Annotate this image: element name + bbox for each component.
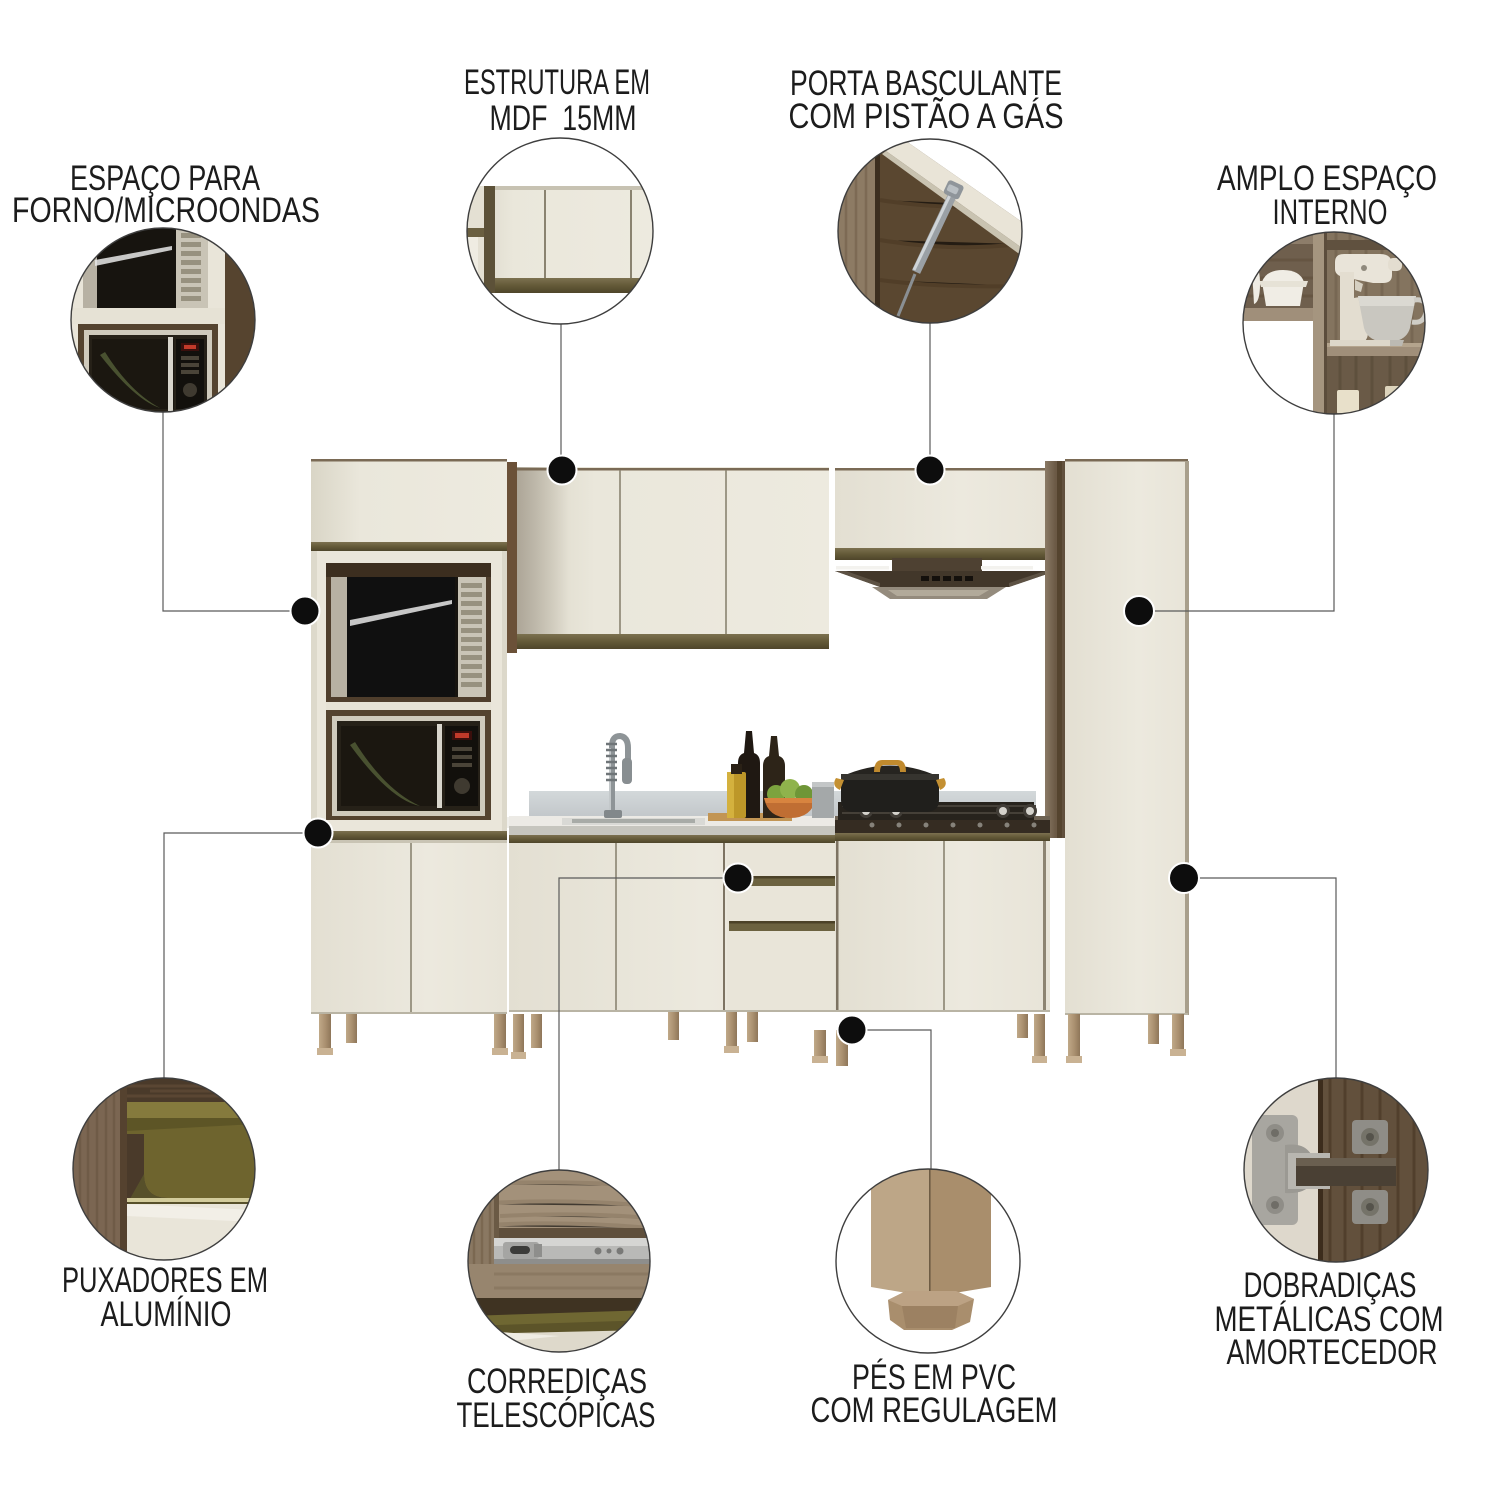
svg-text:TELESCÓPICAS: TELESCÓPICAS	[457, 1396, 656, 1435]
svg-text:MDF 15MM: MDF 15MM	[490, 99, 637, 138]
svg-text:FORNO/MICROONDAS: FORNO/MICROONDAS	[12, 191, 320, 230]
svg-text:AMORTECEDOR: AMORTECEDOR	[1227, 1333, 1438, 1372]
svg-text:COM PISTÃO A GÁS: COM PISTÃO A GÁS	[789, 97, 1064, 136]
svg-text:COM REGULAGEM: COM REGULAGEM	[811, 1391, 1058, 1430]
svg-text:ALUMÍNIO: ALUMÍNIO	[101, 1295, 232, 1334]
svg-text:INTERNO: INTERNO	[1273, 193, 1388, 232]
svg-text:ESTRUTURA EM: ESTRUTURA EM	[464, 63, 650, 102]
